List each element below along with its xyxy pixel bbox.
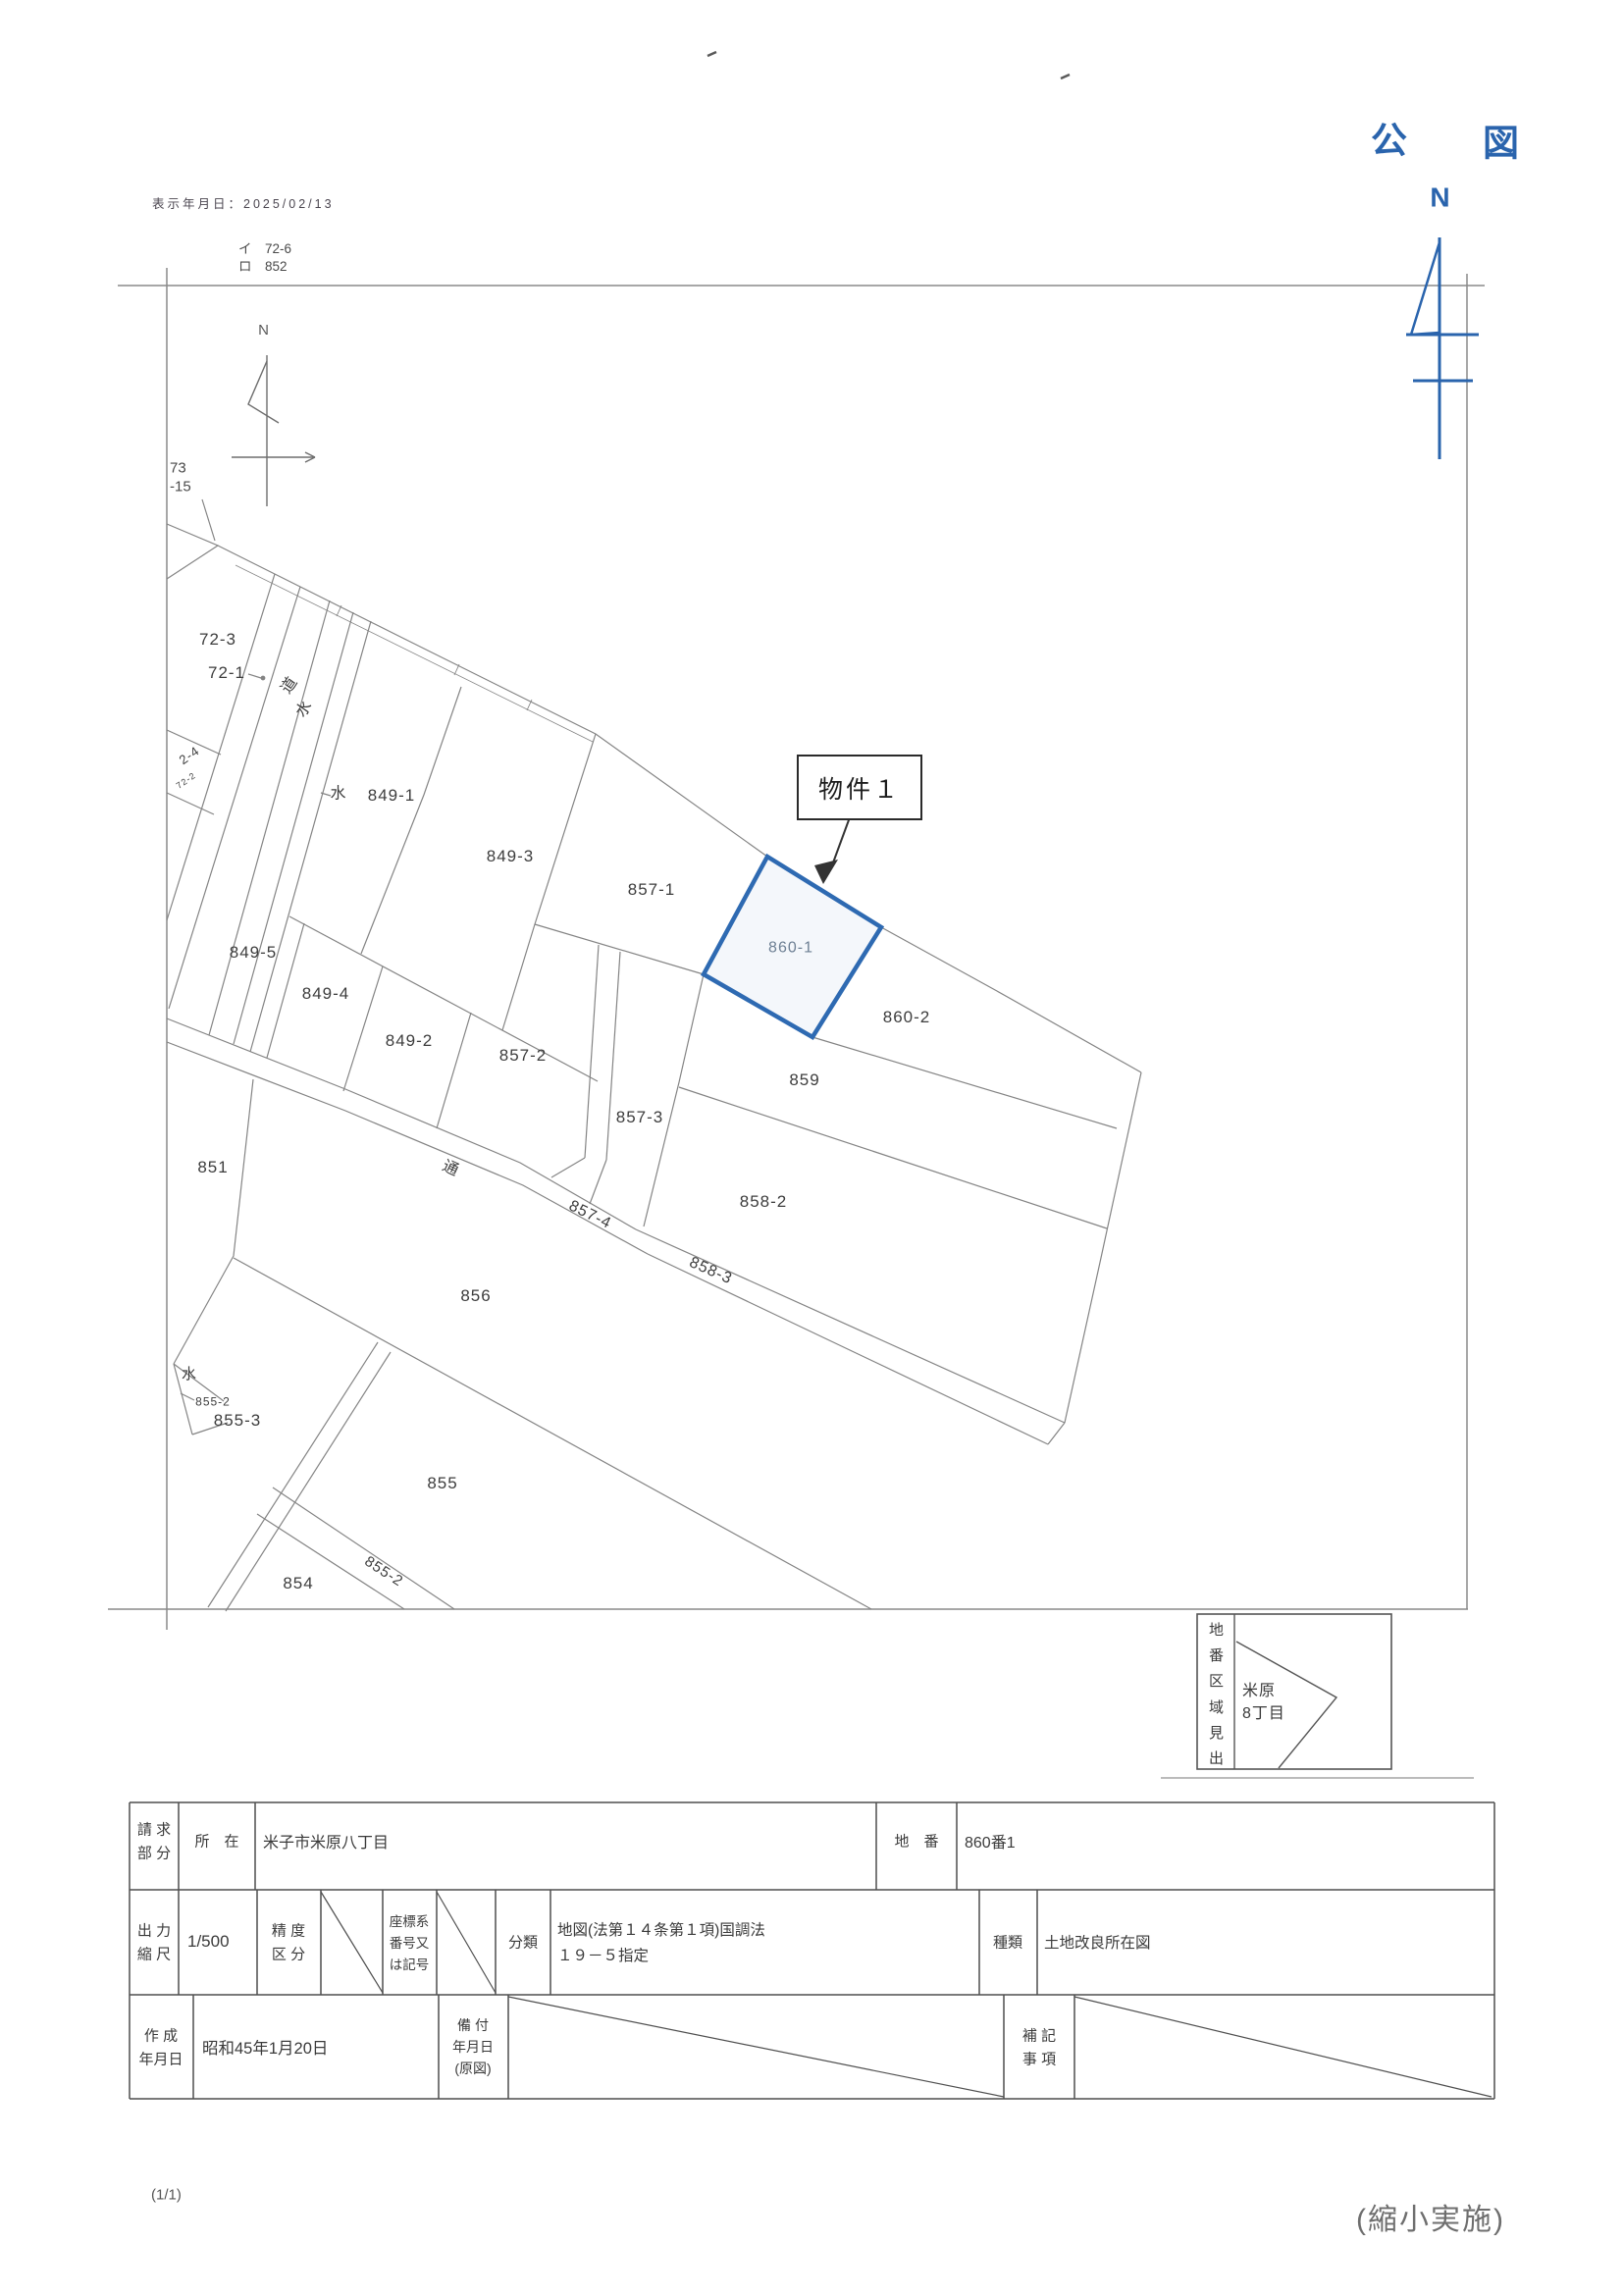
table-value-scale: 1/500 xyxy=(187,1932,230,1952)
doc-title-zu: 図 xyxy=(1483,126,1520,164)
parcel-label: 858-2 xyxy=(740,1193,787,1211)
map-linework xyxy=(0,0,1623,2296)
corner-reference-notes: イ 72-6 ロ 852 xyxy=(238,240,291,275)
parcel-label: 854 xyxy=(283,1575,313,1592)
parcel-label: 水 xyxy=(182,1367,197,1383)
corner-note-line1: イ 72-6 xyxy=(238,240,291,258)
parcel-label: 849-1 xyxy=(368,787,415,805)
north-arrow-blue xyxy=(1406,237,1479,459)
table-label-scale-b: 縮 尺 xyxy=(137,1944,171,1964)
parcel-lines xyxy=(167,499,1141,1611)
reduction-note: (縮小実施) xyxy=(1356,2195,1505,2238)
table-label-classification: 分類 xyxy=(508,1932,538,1953)
table-label-coord-b: 番号又 xyxy=(390,1932,430,1952)
parcel-label: 857-3 xyxy=(616,1109,663,1126)
parcel-label: 860-1 xyxy=(768,941,813,958)
parcel-label: 860-2 xyxy=(883,1009,930,1026)
parcel-label: 水 xyxy=(330,787,346,804)
legend-vertical-title: 地番区域見出 xyxy=(1198,1619,1234,1768)
table-label-scale-a: 出 力 xyxy=(137,1920,171,1941)
parcel-label: 849-2 xyxy=(386,1032,433,1050)
table-value-lot-number: 860番1 xyxy=(965,1829,1016,1852)
table-label-kind: 種類 xyxy=(993,1932,1022,1953)
page-number: (1/1) xyxy=(151,2187,182,2204)
table-value-classification-2: １９－５指定 xyxy=(557,1944,649,1965)
legend-title-char: 区 xyxy=(1209,1670,1224,1691)
kouzu-document-page: 表示年月日：2025/02/13 公 図 N イ 72-6 ロ 852 73 -… xyxy=(0,0,1623,2296)
parcel-label: 855-3 xyxy=(214,1412,261,1430)
parcel-label-15: -15 xyxy=(170,478,191,496)
legend-area-line1: 米原 xyxy=(1242,1680,1285,1702)
legend-title-char: 地 xyxy=(1209,1619,1224,1640)
legend-title-char: 番 xyxy=(1209,1644,1224,1665)
print-date: 表示年月日：2025/02/13 xyxy=(152,193,335,212)
doc-title-kou: 公 xyxy=(1371,123,1408,161)
table-label-lot-number: 地 番 xyxy=(894,1831,938,1852)
table-label-location: 所 在 xyxy=(194,1831,238,1852)
table-value-created-date: 昭和45年1月20日 xyxy=(202,2035,328,2059)
legend-area-line2: 8丁目 xyxy=(1242,1702,1285,1725)
legend-title-char: 域 xyxy=(1209,1696,1224,1717)
table-value-location: 米子市米原八丁目 xyxy=(263,1829,389,1852)
parcel-label: 849-5 xyxy=(230,944,277,962)
table-label-created-b: 年月日 xyxy=(138,2049,183,2069)
table-value-classification-1: 地図(法第１４条第１項)国調法 xyxy=(557,1918,765,1940)
parcel-label: 857-1 xyxy=(628,881,675,899)
table-label-notes-b: 事 項 xyxy=(1022,2049,1056,2069)
parcel-label: 855 xyxy=(427,1475,457,1492)
table-label-filed-c: (原図) xyxy=(454,2059,491,2078)
table-label-notes-a: 補 記 xyxy=(1022,2025,1056,2046)
table-label-filed-b: 年月日 xyxy=(452,2037,494,2057)
legend-area-name: 米原 8丁目 xyxy=(1242,1680,1285,1725)
parcel-label: 72-3 xyxy=(199,631,236,649)
north-arrow-black xyxy=(232,355,315,506)
corner-note-line2: ロ 852 xyxy=(238,258,291,276)
table-label-precision-a: 精 度 xyxy=(272,1920,305,1941)
parcel-label: 849-4 xyxy=(302,985,349,1003)
parcel-label: 857-2 xyxy=(499,1047,547,1065)
parcel-label: 855-2 xyxy=(195,1396,231,1409)
callout-arrow xyxy=(814,817,850,884)
legend-title-char: 見 xyxy=(1209,1722,1224,1743)
table-label-created-a: 作 成 xyxy=(144,2025,178,2046)
table-label-filed-a: 備 付 xyxy=(457,2015,489,2035)
parcel-label: 859 xyxy=(789,1071,819,1089)
north-label-black: N xyxy=(258,323,270,339)
table-label-request-a: 請 求 xyxy=(137,1819,171,1840)
north-label-blue: N xyxy=(1430,183,1450,211)
parcel-label: 856 xyxy=(460,1287,491,1305)
table-label-coord-a: 座標系 xyxy=(390,1910,430,1930)
table-label-request-b: 部 分 xyxy=(137,1843,171,1863)
parcel-label-73-15: 73 -15 xyxy=(170,459,191,496)
parcel-label: 849-3 xyxy=(487,848,534,865)
parcel-label: 851 xyxy=(197,1159,228,1176)
parcel-label: 72-1 xyxy=(208,664,245,682)
parcel-label-73: 73 xyxy=(170,459,191,478)
table-label-precision-b: 区 分 xyxy=(272,1944,305,1964)
legend-title-char: 出 xyxy=(1209,1748,1224,1768)
property-callout-box: 物件１ xyxy=(797,755,922,820)
table-value-kind: 土地改良所在図 xyxy=(1044,1931,1151,1953)
table-label-coord-c: は記号 xyxy=(390,1954,430,1973)
scan-marks xyxy=(707,52,1070,78)
